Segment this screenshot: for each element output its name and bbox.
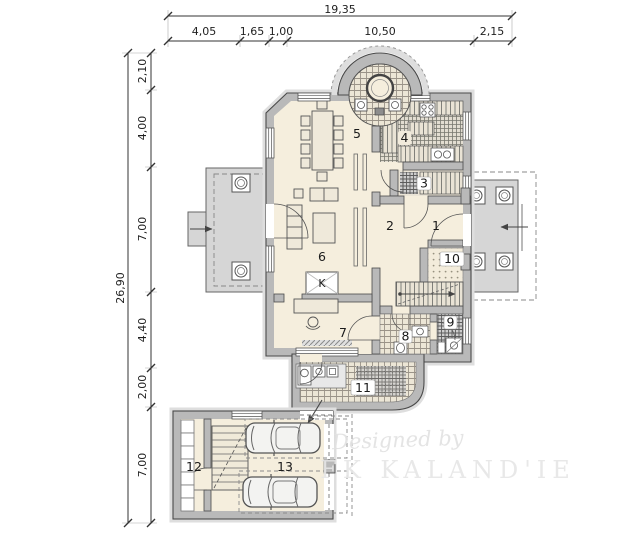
- room-label-3: 3: [420, 176, 428, 191]
- left-terrace: [188, 168, 266, 292]
- dim-top-seg-1: 4,05: [192, 25, 217, 38]
- room-label-12: 12: [186, 459, 202, 474]
- kitchen-sink-icon: [431, 148, 454, 161]
- kitchen-island: [408, 122, 434, 135]
- fireplace: K: [306, 272, 338, 294]
- room-label-11: 11: [355, 380, 371, 395]
- watermark: Designed by FK KALAND'IE: [320, 426, 576, 484]
- fireplace-label: K: [318, 277, 326, 290]
- main-house: K: [266, 46, 471, 410]
- toilet-icon: [394, 342, 407, 354]
- top-dimension: 19,35 4,05 1,65 1,00 10,50 2,15: [164, 3, 516, 47]
- dim-top-total: 19,35: [324, 3, 356, 16]
- dim-top-seg-5: 2,15: [480, 25, 505, 38]
- terrace-column: [232, 262, 250, 280]
- shower-icon: [446, 338, 462, 353]
- porch-column: [496, 187, 513, 204]
- tower-column: [355, 99, 367, 111]
- dim-top-seg-3: 1,00: [269, 25, 294, 38]
- entry-porch: [466, 172, 536, 300]
- main-staircase: [396, 282, 463, 306]
- dim-top-seg-2: 1,65: [240, 25, 265, 38]
- wc-sink-icon: [412, 326, 428, 337]
- dim-left-seg-6: 7,00: [136, 453, 149, 478]
- dim-left-seg-5: 2,00: [136, 375, 149, 400]
- radiator: [302, 340, 352, 346]
- room-label-9: 9: [447, 315, 455, 330]
- stove-icon: [420, 103, 435, 117]
- room-label-2: 2: [386, 218, 394, 233]
- room-label-1: 1: [432, 218, 440, 233]
- dim-left-total: 26,90: [114, 272, 127, 304]
- room-label-4: 4: [401, 130, 409, 145]
- basin-icon: [438, 342, 445, 353]
- car-1: [246, 420, 320, 456]
- dim-top-seg-4: 10,50: [364, 25, 396, 38]
- garage-window: [232, 411, 262, 419]
- dim-left-seg-1: 2,10: [136, 59, 149, 84]
- left-dimension: 26,90 2,10 4,00 7,00 4,40 2,00 7,00: [114, 49, 157, 527]
- room-label-8: 8: [402, 329, 410, 344]
- room-label-13: 13: [277, 459, 293, 474]
- room-label-6: 6: [318, 249, 326, 264]
- dim-left-seg-2: 4,00: [136, 116, 149, 141]
- watermark-line1: Designed by: [331, 426, 465, 455]
- dim-left-seg-4: 4,40: [136, 318, 149, 343]
- floor-plan-page: 19,35 4,05 1,65 1,00 10,50 2,15 26,90 2,…: [0, 0, 638, 556]
- tower-column: [389, 99, 401, 111]
- car-2: [243, 474, 317, 510]
- floor-plan-canvas: 19,35 4,05 1,65 1,00 10,50 2,15 26,90 2,…: [0, 0, 638, 556]
- dim-left-seg-3: 7,00: [136, 217, 149, 242]
- garage-staircase: [212, 426, 248, 490]
- terrace-column: [232, 174, 250, 192]
- porch-column: [496, 253, 513, 270]
- room-label-7: 7: [339, 325, 347, 340]
- room-label-5: 5: [353, 126, 361, 141]
- watermark-line2: FK KALAND'IE: [320, 456, 576, 484]
- room-label-10: 10: [444, 251, 460, 266]
